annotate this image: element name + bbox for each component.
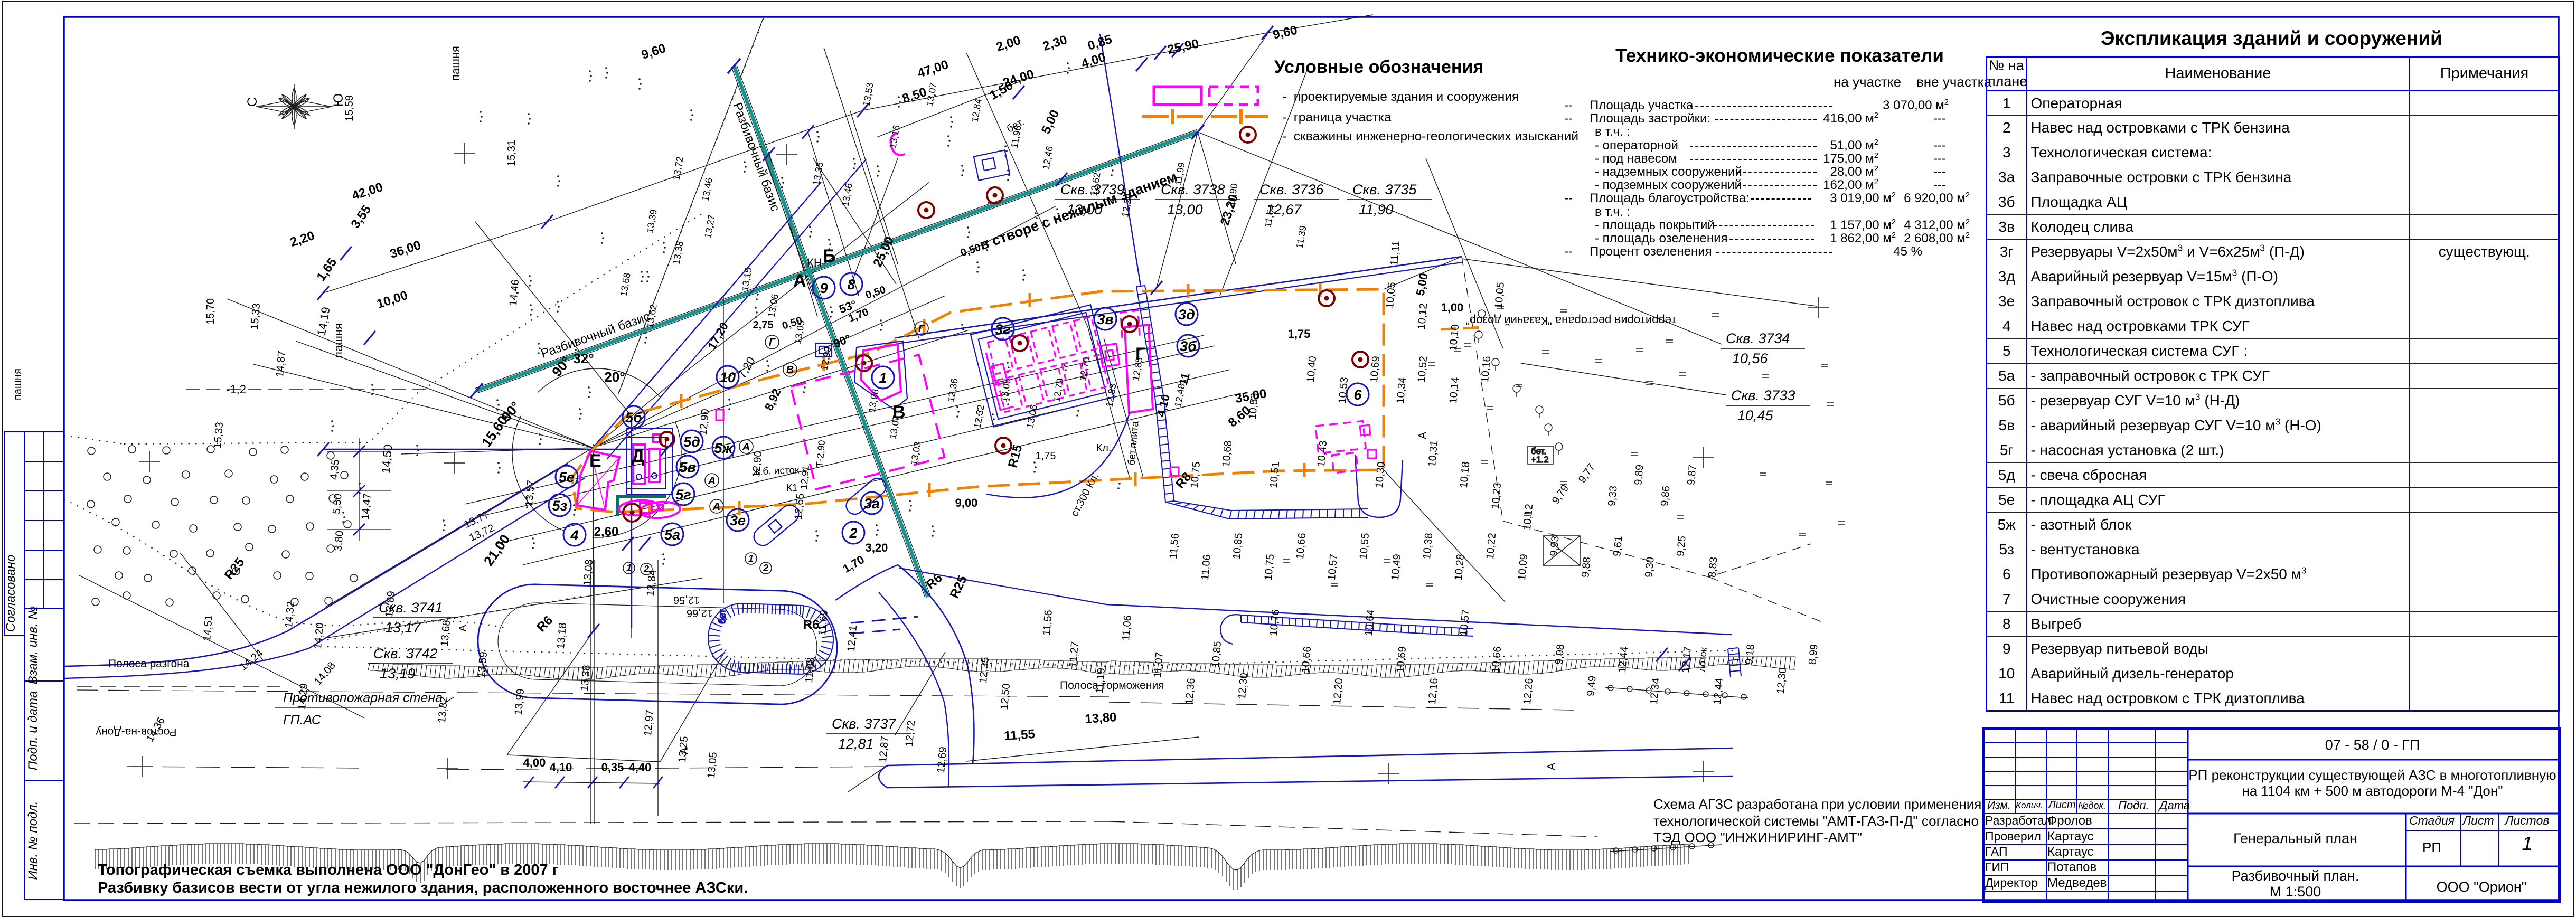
svg-text:8: 8 bbox=[847, 277, 855, 292]
svg-text:10,52: 10,52 bbox=[1416, 356, 1430, 383]
svg-text:12,91: 12,91 bbox=[798, 465, 811, 490]
svg-text:Д: Д bbox=[632, 446, 644, 466]
svg-text:+1.2: +1.2 bbox=[1531, 455, 1549, 465]
svg-text:8,99: 8,99 bbox=[1807, 644, 1820, 665]
svg-text:1,00: 1,00 bbox=[1441, 301, 1464, 314]
svg-text:10,05: 10,05 bbox=[1384, 282, 1398, 309]
svg-text:1,75: 1,75 bbox=[1288, 327, 1311, 341]
svg-text:10,22: 10,22 bbox=[1484, 533, 1498, 560]
svg-text:4,40: 4,40 bbox=[629, 761, 652, 774]
svg-text:10,43: 10,43 bbox=[1315, 440, 1329, 468]
svg-text:13,68: 13,68 bbox=[618, 272, 633, 297]
svg-text:А: А bbox=[1546, 763, 1557, 770]
svg-text:10,18: 10,18 bbox=[1458, 461, 1472, 489]
svg-text:Скв. 3734: Скв. 3734 bbox=[1726, 330, 1790, 346]
svg-text:20°: 20° bbox=[604, 369, 625, 385]
svg-text:10,23: 10,23 bbox=[1490, 483, 1503, 510]
svg-text:8,92: 8,92 bbox=[762, 386, 784, 412]
svg-text:13,35: 13,35 bbox=[811, 161, 825, 186]
svg-text:1,70: 1,70 bbox=[840, 553, 867, 575]
svg-text:13,18: 13,18 bbox=[555, 622, 569, 650]
svg-text:А: А bbox=[679, 747, 690, 754]
svg-text:Скв. 3737: Скв. 3737 bbox=[832, 716, 896, 732]
svg-text:2,20: 2,20 bbox=[288, 229, 316, 250]
svg-text:10,34: 10,34 bbox=[1395, 377, 1408, 404]
svg-text:10,51: 10,51 bbox=[1268, 461, 1282, 489]
svg-text:5,00: 5,00 bbox=[1039, 108, 1062, 136]
svg-text:территория ресторана "Казачий: территория ресторана "Казачий дозор" bbox=[1465, 314, 1677, 327]
svg-text:13,00: 13,00 bbox=[1167, 202, 1203, 218]
svg-text:1,75: 1,75 bbox=[1036, 450, 1056, 462]
svg-text:3д: 3д bbox=[1178, 307, 1195, 323]
svg-text:15,70: 15,70 bbox=[205, 298, 217, 325]
svg-text:9,89: 9,89 bbox=[1632, 464, 1646, 486]
svg-text:10,53: 10,53 bbox=[1337, 377, 1350, 404]
svg-text:11,06: 11,06 bbox=[1199, 554, 1213, 580]
svg-text:12,50: 12,50 bbox=[999, 683, 1012, 711]
svg-text:пашня: пашня bbox=[12, 368, 24, 400]
svg-text:9,60: 9,60 bbox=[1272, 23, 1299, 42]
svg-text:12,16: 12,16 bbox=[1426, 678, 1440, 705]
svg-text:0,85: 0,85 bbox=[1086, 32, 1114, 53]
svg-text:-1,2: -1,2 bbox=[226, 383, 246, 396]
svg-text:3,80: 3,80 bbox=[332, 530, 345, 552]
svg-text:2,75: 2,75 bbox=[753, 319, 774, 331]
svg-text:2: 2 bbox=[849, 525, 857, 541]
svg-text:10,56: 10,56 bbox=[1732, 351, 1769, 366]
svg-text:13,08: 13,08 bbox=[581, 559, 595, 587]
svg-text:11,11: 11,11 bbox=[1388, 240, 1402, 266]
svg-text:13,07: 13,07 bbox=[887, 414, 902, 440]
svg-text:А: А bbox=[742, 441, 750, 453]
svg-text:36,00: 36,00 bbox=[388, 238, 422, 261]
svg-text:13,05: 13,05 bbox=[998, 377, 1013, 403]
svg-text:2: 2 bbox=[763, 563, 768, 573]
svg-text:15,59: 15,59 bbox=[344, 95, 355, 121]
svg-text:12,34: 12,34 bbox=[1648, 678, 1662, 705]
svg-text:9: 9 bbox=[820, 280, 828, 296]
svg-text:9,33: 9,33 bbox=[1606, 485, 1619, 507]
svg-text:9,18: 9,18 bbox=[1743, 644, 1756, 665]
svg-text:9,49: 9,49 bbox=[1585, 675, 1598, 697]
svg-text:10,12: 10,12 bbox=[1416, 303, 1430, 330]
svg-text:5е: 5е bbox=[559, 469, 575, 485]
svg-text:10: 10 bbox=[720, 370, 736, 385]
svg-text:Б: Б bbox=[823, 246, 835, 266]
svg-text:Противопожарная стена: Противопожарная стена bbox=[283, 691, 443, 705]
svg-text:13,17: 13,17 bbox=[385, 620, 421, 636]
svg-text:10,09: 10,09 bbox=[1516, 554, 1530, 581]
svg-text:10,31: 10,31 bbox=[1426, 440, 1440, 468]
svg-text:47,00: 47,00 bbox=[916, 58, 950, 81]
svg-text:13,59: 13,59 bbox=[476, 651, 490, 679]
svg-text:14,19: 14,19 bbox=[315, 306, 333, 337]
svg-text:ст.300 Кл.: ст.300 Кл. bbox=[1069, 471, 1102, 518]
svg-text:11,69: 11,69 bbox=[816, 609, 830, 636]
svg-text:10,10: 10,10 bbox=[1447, 324, 1461, 352]
svg-text:12,69: 12,69 bbox=[935, 746, 949, 774]
svg-text:13,07: 13,07 bbox=[924, 82, 939, 107]
svg-text:10,69: 10,69 bbox=[1395, 646, 1408, 674]
svg-text:10,66: 10,66 bbox=[1294, 533, 1308, 560]
svg-text:13,38: 13,38 bbox=[671, 240, 685, 266]
svg-text:А: А bbox=[708, 475, 716, 487]
svg-text:5д: 5д bbox=[683, 434, 700, 450]
svg-text:Разбивочный базис: Разбивочный базис bbox=[730, 101, 783, 213]
svg-text:1: 1 bbox=[879, 370, 887, 386]
svg-text:R6: R6 bbox=[534, 613, 556, 635]
svg-text:А: А bbox=[793, 271, 806, 291]
svg-text:9,30: 9,30 bbox=[1643, 556, 1656, 578]
svg-text:5ж: 5ж bbox=[714, 440, 734, 456]
svg-text:42,00: 42,00 bbox=[350, 180, 384, 203]
svg-text:14,32: 14,32 bbox=[283, 601, 297, 629]
svg-text:12,46: 12,46 bbox=[1040, 145, 1055, 171]
svg-text:14,08: 14,08 bbox=[312, 660, 338, 687]
svg-text:9,87: 9,87 bbox=[1685, 464, 1698, 486]
svg-text:11,39: 11,39 bbox=[1294, 225, 1308, 250]
svg-text:пашня: пашня bbox=[449, 46, 462, 81]
svg-text:25,00: 25,00 bbox=[870, 234, 897, 269]
svg-text:10,57: 10,57 bbox=[1458, 609, 1472, 637]
svg-text:12,84: 12,84 bbox=[969, 98, 984, 123]
svg-text:11,56: 11,56 bbox=[1041, 609, 1055, 636]
svg-text:13,38: 13,38 bbox=[579, 665, 593, 692]
svg-text:10,16: 10,16 bbox=[1479, 356, 1493, 383]
svg-text:Подп. и дата: Подп. и дата bbox=[26, 691, 40, 770]
svg-text:12,26: 12,26 bbox=[1521, 678, 1535, 705]
svg-text:12,81: 12,81 bbox=[838, 736, 874, 752]
svg-text:В: В bbox=[786, 364, 794, 376]
svg-text:10,66: 10,66 bbox=[1300, 646, 1313, 674]
svg-text:12,30: 12,30 bbox=[1236, 673, 1250, 700]
svg-text:Инв. № подл.: Инв. № подл. bbox=[26, 801, 40, 880]
svg-text:ж.б. исток: ж.б. исток bbox=[753, 465, 800, 477]
svg-text:0,50: 0,50 bbox=[959, 242, 982, 259]
svg-text:5,50: 5,50 bbox=[331, 493, 344, 515]
svg-text:8,83: 8,83 bbox=[1706, 556, 1719, 578]
svg-text:9,00: 9,00 bbox=[955, 496, 978, 509]
svg-text:13,06: 13,06 bbox=[1024, 404, 1039, 429]
svg-text:Кл.: Кл. bbox=[1096, 442, 1112, 454]
svg-text:10,45: 10,45 bbox=[1737, 408, 1774, 423]
svg-text:Согласовано: Согласовано bbox=[4, 555, 18, 632]
svg-text:11,06: 11,06 bbox=[1120, 615, 1134, 641]
svg-text:А: А bbox=[1417, 432, 1428, 439]
svg-text:15,33: 15,33 bbox=[212, 422, 225, 449]
svg-text:13,57: 13,57 bbox=[523, 480, 537, 507]
svg-text:11,07: 11,07 bbox=[1152, 651, 1165, 678]
svg-text:Скв. 3736: Скв. 3736 bbox=[1259, 182, 1324, 197]
svg-text:13,72: 13,72 bbox=[671, 156, 685, 181]
svg-text:С: С bbox=[245, 97, 260, 107]
svg-text:13,15: 13,15 bbox=[739, 267, 754, 292]
svg-text:12,36: 12,36 bbox=[945, 377, 960, 403]
svg-text:25,90: 25,90 bbox=[1166, 36, 1200, 57]
svg-text:Г: Г bbox=[918, 323, 926, 335]
svg-text:10,68: 10,68 bbox=[1220, 440, 1234, 468]
svg-text:9,25: 9,25 bbox=[1675, 535, 1688, 557]
svg-text:1,65: 1,65 bbox=[314, 256, 340, 284]
svg-text:12,44: 12,44 bbox=[1712, 678, 1725, 705]
svg-text:12,90: 12,90 bbox=[698, 409, 711, 436]
svg-text:12,87: 12,87 bbox=[877, 736, 891, 763]
svg-text:10,28: 10,28 bbox=[1453, 554, 1466, 581]
svg-text:12,35: 12,35 bbox=[977, 657, 991, 684]
svg-text:Взам. инв. №: Взам. инв. № bbox=[26, 606, 40, 684]
svg-text:13,99: 13,99 bbox=[513, 688, 527, 716]
svg-text:10,57: 10,57 bbox=[1326, 554, 1340, 581]
svg-text:4,35: 4,35 bbox=[328, 459, 341, 480]
svg-text:3г: 3г bbox=[995, 322, 1010, 337]
svg-text:12,85: 12,85 bbox=[1130, 356, 1145, 382]
svg-text:15,33: 15,33 bbox=[249, 303, 262, 330]
svg-text:12,84: 12,84 bbox=[645, 570, 659, 597]
svg-text:13,80: 13,80 bbox=[1085, 710, 1117, 726]
svg-text:11,88: 11,88 bbox=[803, 657, 817, 683]
svg-text:12,66: 12,66 bbox=[687, 607, 713, 619]
svg-text:10,14: 10,14 bbox=[1447, 377, 1461, 404]
svg-text:КН: КН bbox=[807, 256, 822, 269]
svg-text:10,00: 10,00 bbox=[375, 288, 409, 311]
svg-text:13,46: 13,46 bbox=[840, 182, 854, 207]
svg-text:10,49: 10,49 bbox=[1389, 554, 1403, 581]
svg-text:10,12: 10,12 bbox=[1521, 504, 1535, 531]
svg-text:4: 4 bbox=[570, 527, 578, 543]
svg-text:9,98: 9,98 bbox=[1553, 644, 1566, 665]
svg-text:14,20: 14,20 bbox=[312, 622, 326, 650]
svg-text:13,27: 13,27 bbox=[702, 214, 717, 239]
svg-text:пашня: пашня bbox=[332, 323, 345, 358]
svg-text:12,20: 12,20 bbox=[1331, 678, 1345, 705]
svg-text:Скв. 3733: Скв. 3733 bbox=[1731, 387, 1795, 403]
svg-text:11,55: 11,55 bbox=[1003, 727, 1035, 743]
svg-text:бет.: бет. bbox=[1005, 116, 1027, 135]
svg-text:Скв. 3741: Скв. 3741 bbox=[379, 600, 443, 616]
svg-text:14,87: 14,87 bbox=[274, 351, 288, 378]
svg-text:13,46: 13,46 bbox=[700, 177, 714, 202]
svg-text:12,36: 12,36 bbox=[1183, 678, 1197, 705]
svg-text:6: 6 bbox=[1353, 387, 1362, 403]
svg-text:Е: Е bbox=[589, 451, 601, 471]
svg-text:32°: 32° bbox=[573, 351, 594, 366]
svg-text:3,55: 3,55 bbox=[348, 203, 374, 231]
svg-text:10,53: 10,53 bbox=[1247, 393, 1261, 420]
svg-text:9,60: 9,60 bbox=[640, 41, 667, 62]
svg-text:12,17: 12,17 bbox=[1680, 646, 1694, 674]
svg-text:Полоса разгона: Полоса разгона bbox=[108, 658, 190, 670]
svg-text:15,31: 15,31 bbox=[506, 140, 518, 166]
svg-text:11,90: 11,90 bbox=[1359, 202, 1394, 218]
svg-text:5а: 5а bbox=[664, 527, 680, 543]
svg-text:12,97: 12,97 bbox=[642, 710, 656, 737]
svg-text:10,85: 10,85 bbox=[1231, 533, 1245, 560]
svg-text:0,35: 0,35 bbox=[601, 761, 624, 774]
svg-text:9,61: 9,61 bbox=[1611, 535, 1624, 557]
svg-text:4,00: 4,00 bbox=[523, 756, 546, 769]
svg-text:14,50: 14,50 bbox=[379, 444, 395, 474]
svg-text:9,77: 9,77 bbox=[1576, 461, 1597, 485]
svg-text:12,48: 12,48 bbox=[1172, 383, 1187, 408]
svg-text:10,38: 10,38 bbox=[1421, 533, 1435, 560]
svg-text:Г: Г bbox=[769, 337, 776, 348]
svg-text:12,65: 12,65 bbox=[793, 493, 806, 521]
svg-text:10,66: 10,66 bbox=[1490, 646, 1503, 674]
svg-text:14,47: 14,47 bbox=[360, 493, 373, 521]
svg-text:13,06: 13,06 bbox=[766, 293, 781, 318]
svg-text:Скв. 3735: Скв. 3735 bbox=[1352, 182, 1417, 197]
svg-text:11,27: 11,27 bbox=[1067, 641, 1081, 667]
svg-text:бет.плита: бет.плита bbox=[1126, 421, 1141, 466]
svg-text:1: 1 bbox=[626, 563, 632, 573]
svg-text:10,85: 10,85 bbox=[1210, 641, 1224, 668]
svg-text:10,30: 10,30 bbox=[1374, 461, 1387, 489]
svg-text:0,50: 0,50 bbox=[864, 284, 887, 301]
svg-text:5б: 5б bbox=[625, 410, 643, 426]
svg-text:лоток: лоток bbox=[1696, 647, 1709, 672]
svg-text:4,10: 4,10 bbox=[550, 761, 572, 774]
svg-text:3б: 3б bbox=[1180, 338, 1197, 354]
svg-text:12,67: 12,67 bbox=[1266, 202, 1302, 218]
svg-text:12,44: 12,44 bbox=[1616, 646, 1630, 674]
svg-text:2,60: 2,60 bbox=[594, 525, 619, 539]
svg-text:11,56: 11,56 bbox=[1168, 533, 1181, 559]
svg-text:10,55: 10,55 bbox=[1358, 533, 1371, 560]
svg-text:3в: 3в bbox=[1097, 311, 1113, 327]
svg-text:10,05: 10,05 bbox=[1493, 282, 1507, 309]
svg-text:А: А bbox=[457, 625, 469, 632]
svg-text:13,16: 13,16 bbox=[887, 124, 902, 149]
svg-text:12,32: 12,32 bbox=[972, 404, 986, 429]
svg-text:13,05: 13,05 bbox=[706, 752, 719, 779]
svg-text:R15: R15 bbox=[1005, 443, 1025, 469]
svg-text:9,88: 9,88 bbox=[1580, 556, 1593, 578]
svg-text:10,69: 10,69 bbox=[1368, 356, 1382, 383]
svg-text:90°: 90° bbox=[832, 332, 853, 351]
svg-text:12,41: 12,41 bbox=[845, 625, 859, 653]
svg-text:А: А bbox=[712, 501, 720, 513]
svg-text:5в: 5в bbox=[679, 459, 695, 475]
svg-text:Скв. 3742: Скв. 3742 bbox=[373, 646, 437, 661]
svg-text:13,68: 13,68 bbox=[439, 620, 453, 647]
svg-text:2,30: 2,30 bbox=[1041, 33, 1069, 54]
svg-text:3е: 3е bbox=[730, 513, 746, 528]
svg-text:13,39: 13,39 bbox=[644, 209, 659, 234]
svg-text:17,20: 17,20 bbox=[705, 320, 731, 352]
svg-text:К1: К1 bbox=[786, 483, 798, 494]
svg-text:1: 1 bbox=[748, 553, 754, 564]
svg-text:Ростов-на-Дону: Ростов-на-Дону bbox=[96, 726, 176, 738]
svg-text:5з: 5з bbox=[552, 498, 568, 514]
svg-text:9,93: 9,93 bbox=[1548, 535, 1561, 557]
svg-text:12,30: 12,30 bbox=[1775, 667, 1789, 695]
svg-text:10,75: 10,75 bbox=[1189, 461, 1202, 489]
svg-text:3а: 3а bbox=[864, 496, 880, 512]
svg-text:3,20: 3,20 bbox=[866, 541, 888, 554]
svg-text:10,76: 10,76 bbox=[1268, 609, 1282, 637]
svg-text:10,40: 10,40 bbox=[1305, 356, 1319, 383]
svg-text:14,51: 14,51 bbox=[201, 615, 215, 642]
svg-text:10,75: 10,75 bbox=[1263, 554, 1276, 581]
svg-text:ГП.АС: ГП.АС bbox=[283, 713, 322, 727]
svg-text:14,24: 14,24 bbox=[238, 647, 265, 673]
svg-text:13,19: 13,19 bbox=[380, 666, 416, 682]
svg-text:14,46: 14,46 bbox=[507, 279, 521, 307]
svg-text:9,79: 9,79 bbox=[1550, 483, 1571, 506]
svg-text:2,00: 2,00 bbox=[994, 33, 1022, 54]
svg-text:Т-2,90: Т-2,90 bbox=[814, 440, 827, 468]
svg-text:12,70: 12,70 bbox=[1077, 356, 1092, 382]
svg-text:4,00: 4,00 bbox=[1079, 50, 1107, 71]
svg-text:12,70: 12,70 bbox=[1051, 377, 1066, 403]
svg-text:5г: 5г bbox=[675, 487, 691, 503]
svg-text:12,56: 12,56 bbox=[673, 594, 700, 606]
svg-text:10,64: 10,64 bbox=[1363, 609, 1377, 637]
svg-text:9,86: 9,86 bbox=[1659, 485, 1672, 507]
svg-text:13,53: 13,53 bbox=[861, 82, 876, 107]
svg-text:Полоса торможения: Полоса торможения bbox=[1060, 679, 1164, 692]
svg-text:бет: бет bbox=[717, 609, 728, 624]
svg-text:R25: R25 bbox=[222, 555, 247, 582]
